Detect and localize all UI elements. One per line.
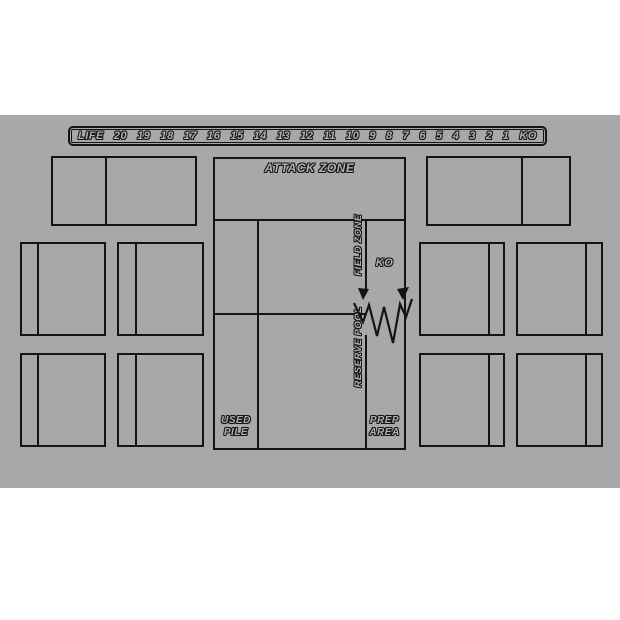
life-value: 15 <box>230 130 243 142</box>
playmat: LIFE 2019181716151413121110987654321KO <box>0 115 620 488</box>
central-play-area: ATTACK ZONE USED PILE FIELD ZONE RESERVE… <box>213 157 406 450</box>
life-value: 9 <box>369 130 376 142</box>
slot-divider <box>488 244 490 334</box>
life-value: 18 <box>160 130 173 142</box>
card-slot-pair-top-right <box>426 156 571 226</box>
slot-divider <box>105 158 107 224</box>
slot-divider <box>135 355 137 445</box>
card-slot-left-bottom-2 <box>117 353 204 447</box>
used-pile-label: USED PILE <box>215 415 257 439</box>
slot-divider <box>135 244 137 334</box>
life-value: 5 <box>436 130 443 142</box>
life-value: 3 <box>469 130 476 142</box>
ko-zone-label: KO <box>365 257 404 269</box>
life-value: 8 <box>386 130 393 142</box>
life-value: 1 <box>503 130 510 142</box>
card-slot-right-bottom-1 <box>419 353 505 447</box>
life-value: 2 <box>486 130 493 142</box>
card-slot-left-bottom-1 <box>20 353 106 447</box>
ko-column-boundary <box>365 219 367 290</box>
life-value: 13 <box>277 130 290 142</box>
life-counter-bar: LIFE 2019181716151413121110987654321KO <box>68 126 547 146</box>
card-slot-right-mid-2 <box>516 242 603 336</box>
attack-zone-label: ATTACK ZONE <box>215 161 404 175</box>
card-slot-pair-top-left <box>51 156 197 226</box>
life-value: 19 <box>137 130 150 142</box>
card-slot-left-mid-2 <box>117 242 204 336</box>
playmat-image: LIFE 2019181716151413121110987654321KO <box>0 0 620 620</box>
life-value: 10 <box>346 130 359 142</box>
slot-divider <box>585 244 587 334</box>
life-value: 6 <box>419 130 426 142</box>
slot-divider <box>37 244 39 334</box>
life-value: 16 <box>207 130 220 142</box>
life-value: 4 <box>453 130 460 142</box>
field-zone-label: FIELD ZONE <box>353 200 365 290</box>
slot-divider <box>585 355 587 445</box>
life-value: KO <box>519 130 537 142</box>
prep-area-label: PREP AREA <box>365 415 404 439</box>
ko-blast-burst-icon <box>352 282 414 352</box>
used-pile-boundary <box>257 219 259 448</box>
life-value: 17 <box>184 130 197 142</box>
card-slot-right-mid-1 <box>419 242 505 336</box>
attack-zone-boundary <box>215 219 404 221</box>
card-slot-left-mid-1 <box>20 242 106 336</box>
life-value: 7 <box>403 130 410 142</box>
life-value: 20 <box>114 130 127 142</box>
slot-divider <box>488 355 490 445</box>
life-label: LIFE <box>78 130 104 142</box>
life-value: 14 <box>254 130 267 142</box>
slot-divider <box>521 158 523 224</box>
field-reserve-boundary <box>215 313 365 315</box>
slot-divider <box>37 355 39 445</box>
life-value: 11 <box>324 130 336 142</box>
life-value: 12 <box>300 130 313 142</box>
card-slot-right-bottom-2 <box>516 353 603 447</box>
